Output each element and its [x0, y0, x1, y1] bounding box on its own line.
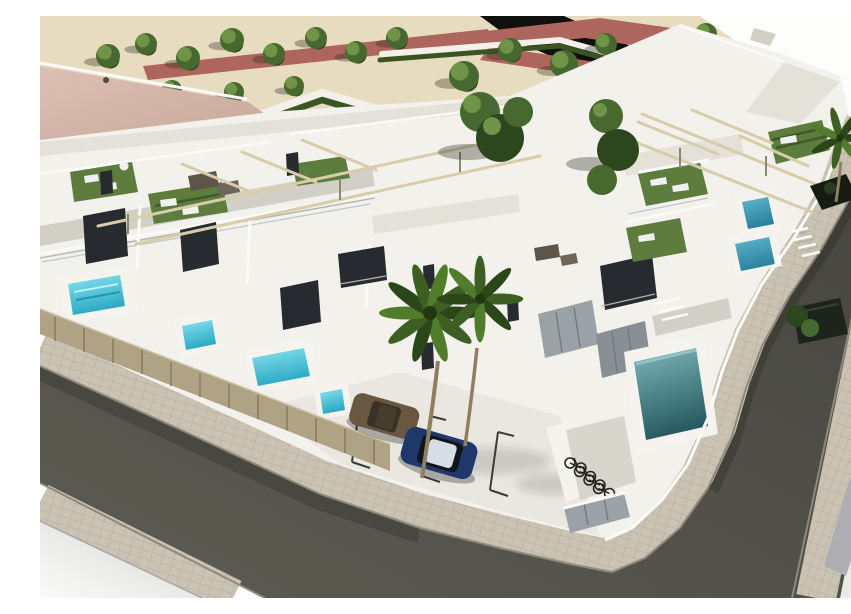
roof-vent — [103, 77, 109, 83]
terrace-door — [100, 170, 113, 195]
architectural-render: Aerial 3D architectural rendering of a m… — [40, 16, 851, 598]
plunge-pool — [320, 389, 345, 414]
palm-canopy — [437, 256, 524, 343]
render-canvas: Aerial 3D architectural rendering of a m… — [40, 16, 851, 598]
window — [83, 208, 128, 264]
patio-table — [120, 162, 129, 171]
window — [280, 280, 321, 330]
